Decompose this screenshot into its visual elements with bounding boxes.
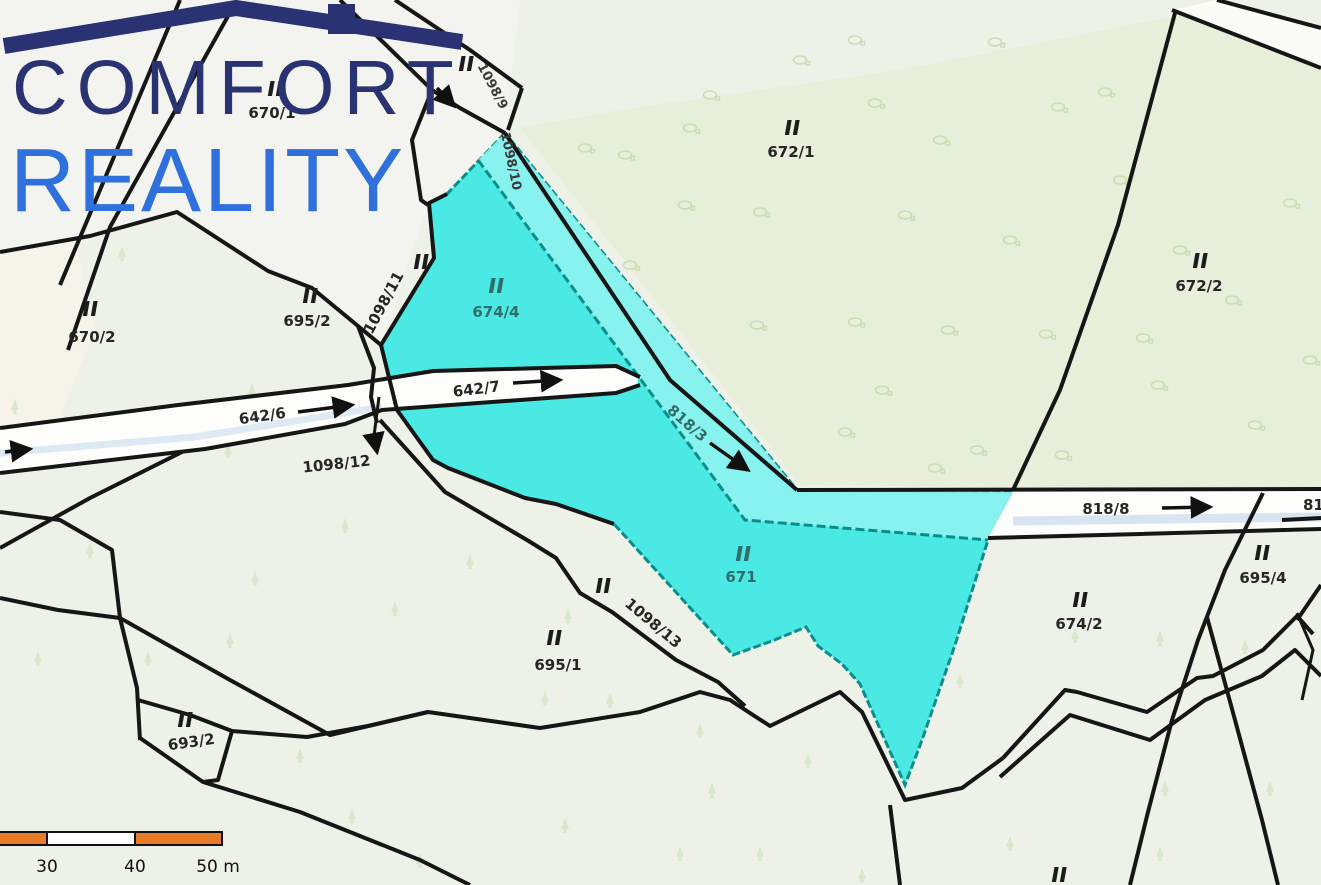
parcel-label: 818/8 xyxy=(1303,496,1321,514)
parcel-label: 818/8 xyxy=(1082,500,1129,518)
parcel-label: 670/2 xyxy=(68,328,115,346)
flow-arrow xyxy=(1162,507,1210,508)
scale-tick-label: 50 m xyxy=(196,857,240,877)
scale-tick-label: 30 xyxy=(36,857,58,877)
parcel-label: 672/1 xyxy=(767,143,814,161)
parcel-label: 671 xyxy=(725,568,756,586)
parcel-label: 674/4 xyxy=(472,303,519,321)
parcel-label: 672/2 xyxy=(1175,277,1222,295)
scale-segment xyxy=(0,832,47,845)
parcel-label: 674/2 xyxy=(1055,615,1102,633)
parcel-label: 695/2 xyxy=(283,312,330,330)
scale-tick-label: 40 xyxy=(124,857,146,877)
scale-segment xyxy=(135,832,222,845)
parcel-label: 695/1 xyxy=(534,656,581,674)
parcel-label: 695/4 xyxy=(1239,569,1286,587)
stream-line xyxy=(1013,517,1321,521)
cadastral-map: 670/1 670/2 695/2 1098/11 674/4 672/1 67… xyxy=(0,0,1321,885)
scale-segment xyxy=(47,832,135,845)
cadastral-map-screenshot: 670/1 670/2 695/2 1098/11 674/4 672/1 67… xyxy=(0,0,1321,885)
parcel-label: 670/1 xyxy=(248,104,295,122)
